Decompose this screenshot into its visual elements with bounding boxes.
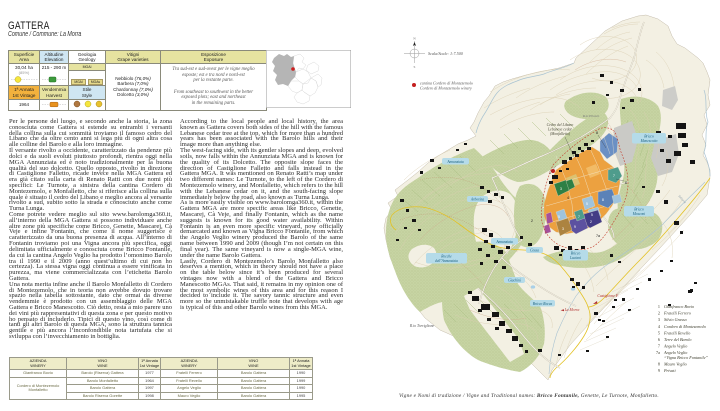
svg-text:3: 3 [560, 187, 562, 191]
svg-text:Rocche: Rocche [440, 255, 452, 259]
svg-text:Fratelli Ferrero: Fratelli Ferrero [663, 311, 691, 316]
svg-text:9: 9 [658, 368, 660, 373]
svg-text:(Monfalletto): (Monfalletto) [550, 132, 571, 136]
svg-text:Privati: Privati [663, 368, 676, 373]
svg-text:1: 1 [658, 304, 660, 309]
svg-text:Angelo Veglio: Angelo Veglio [663, 344, 687, 349]
svg-text:R.io Torriglione: R.io Torriglione [409, 324, 435, 328]
svg-text:“Vigna Bricco Fontanile”: “Vigna Bricco Fontanile” [664, 355, 709, 360]
svg-text:Cordero di Montezemolo winery: Cordero di Montezemolo winery [420, 86, 472, 91]
svg-text:Bricco Rocca: Bricco Rocca [533, 302, 553, 306]
svg-text:7: 7 [613, 174, 615, 178]
svg-text:Silvio Grasso: Silvio Grasso [664, 317, 687, 322]
svg-text:6: 6 [658, 337, 660, 342]
svg-text:Castiglione F.: Castiglione F. [597, 294, 618, 298]
svg-text:Manescotto: Manescotto [640, 139, 658, 143]
svg-text:Bricco: Bricco [644, 135, 654, 139]
svg-text:Lebanese cedar: Lebanese cedar [547, 128, 572, 132]
svg-text:1: 1 [549, 171, 551, 175]
svg-text:7: 7 [578, 215, 580, 219]
svg-text:S: S [414, 65, 416, 69]
svg-text:2: 2 [658, 311, 660, 316]
svg-text:6: 6 [625, 181, 627, 185]
svg-text:Bricco: Bricco [571, 252, 581, 256]
svg-text:Mauro Veglio: Mauro Veglio [663, 362, 687, 367]
svg-text:Cedro del Libano: Cedro del Libano [547, 123, 574, 127]
svg-text:Annunziata: Annunziata [495, 240, 513, 244]
svg-text:8: 8 [658, 362, 660, 367]
svg-text:4: 4 [567, 196, 569, 200]
svg-text:3: 3 [562, 227, 564, 231]
svg-text:5: 5 [558, 215, 560, 219]
svg-text:R.io Pilusèn: R.io Pilusèn [582, 114, 600, 118]
svg-text:5: 5 [591, 213, 593, 217]
svg-text:Arborina: Arborina [470, 198, 484, 202]
svg-text:Terre del Barolo: Terre del Barolo [664, 337, 691, 342]
svg-text:Cordero di Montezemolo: Cordero di Montezemolo [664, 324, 706, 329]
svg-text:Mosconi: Mosconi [632, 212, 645, 216]
svg-text:La Morra: La Morra [564, 308, 580, 312]
svg-text:4: 4 [658, 324, 661, 329]
svg-text:Cossa: Cossa [530, 249, 539, 253]
svg-text:Luciani: Luciani [569, 256, 581, 260]
svg-text:Fratelli Revello: Fratelli Revello [663, 330, 690, 335]
svg-text:7a: 7a [596, 234, 600, 238]
svg-text:5: 5 [658, 330, 660, 335]
svg-text:dell’Annunziata: dell’Annunziata [435, 259, 458, 263]
svg-text:Giachini: Giachini [508, 279, 521, 283]
svg-text:5: 5 [586, 202, 588, 206]
svg-text:Scala/Scale: 1:7.500: Scala/Scale: 1:7.500 [428, 51, 464, 56]
svg-text:Annunziata: Annunziata [446, 160, 464, 164]
svg-text:3: 3 [658, 317, 660, 322]
svg-text:9: 9 [574, 225, 576, 229]
svg-text:8: 8 [596, 131, 598, 135]
svg-text:2: 2 [531, 219, 533, 223]
svg-text:7a: 7a [656, 350, 660, 355]
svg-text:7: 7 [658, 344, 660, 349]
svg-text:Bricco: Bricco [634, 208, 644, 212]
svg-text:8: 8 [602, 198, 604, 202]
svg-text:2: 2 [590, 220, 592, 224]
svg-text:N: N [413, 37, 416, 41]
svg-text:Gianfranco Bovio: Gianfranco Bovio [664, 304, 694, 309]
